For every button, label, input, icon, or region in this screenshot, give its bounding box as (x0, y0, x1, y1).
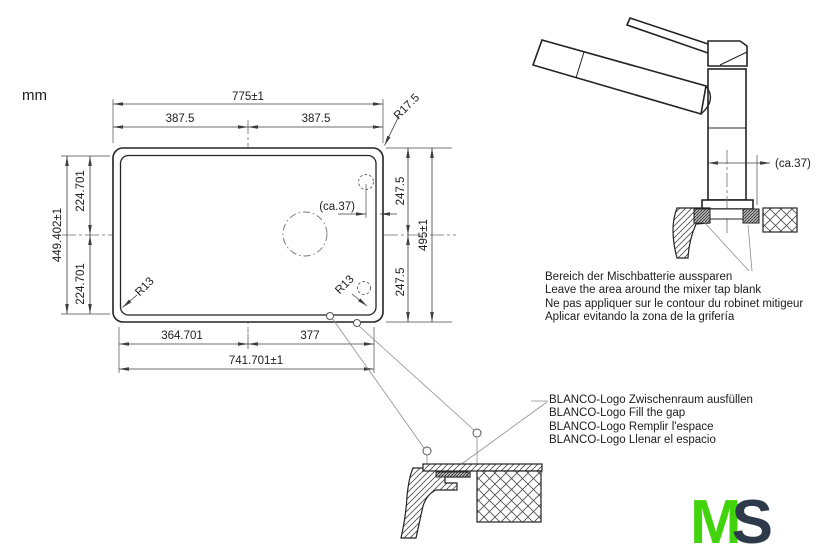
blanco-logo-note: BLANCO-Logo Zwischenraum ausfüllen BLANC… (549, 394, 753, 448)
mixer-note-leader-2 (748, 225, 752, 271)
mixer-note-leader-1 (704, 222, 749, 271)
blanco-logo-note-line-fr: BLANCO-Logo Remplir l'espace (549, 421, 753, 434)
rim-section-view (332, 318, 548, 538)
tap-lever (627, 18, 711, 53)
tap-head (708, 41, 747, 66)
blanco-logo-note-line-de: BLANCO-Logo Zwischenraum ausfüllen (549, 394, 753, 407)
ms-logo-letter-m: M (690, 488, 732, 557)
sink-rim-section (401, 468, 470, 538)
dim-bottom-right: 377 (300, 330, 319, 342)
section-marker-1 (423, 447, 431, 455)
mixer-tap-note: Bereich der Mischbatterie aussparen Leav… (545, 271, 803, 325)
ms-logo-letter-s: S (732, 488, 773, 557)
mixer-tap-note-line-en: Leave the area around the mixer tap blan… (545, 284, 803, 297)
unit-label: mm (22, 87, 47, 104)
dim-tap-offset: (ca.37) (319, 201, 355, 213)
sink-plan-view: 775±1 387.5 387.5 R17.5 247.5 495±1 247.… (52, 91, 456, 373)
logo-leader-2 (359, 326, 474, 430)
mixer-tap-note-line-es: Aplicar evitando la zona de la grifería (545, 311, 803, 324)
dim-bottom-left: 364.701 (161, 330, 203, 342)
logo-leader-1 (332, 318, 424, 448)
tap-mounting-nut (710, 209, 743, 219)
tap-clamp-left (694, 209, 710, 223)
dim-width-half-right: 387.5 (302, 113, 331, 125)
dim-width-half-left: 387.5 (166, 113, 195, 125)
blanco-logo-note-line-es: BLANCO-Logo Llenar el espacio (549, 434, 753, 447)
dim-width-total: 775±1 (232, 91, 264, 103)
blanco-logo-note-line-en: BLANCO-Logo Fill the gap (549, 407, 753, 420)
technical-drawing-sheet: 775±1 387.5 387.5 R17.5 247.5 495±1 247.… (0, 0, 840, 559)
logo-marker-outer (354, 320, 361, 327)
tap-detail-view: (ca.37) (533, 18, 811, 271)
tap-countertop-section (763, 208, 797, 232)
tap-clamp-right (743, 209, 759, 223)
countertop-section (477, 471, 541, 522)
dim-depth-half-bottom: 224.701 (75, 263, 87, 305)
dim-bottom-total: 741.701±1 (229, 355, 283, 367)
dim-depth-half-top: 224.701 (75, 170, 87, 212)
dim-height-half-top: 247.5 (395, 177, 407, 206)
corner-radius-leader (385, 116, 400, 146)
tap-spout (533, 40, 706, 114)
mixer-tap-note-line-de: Bereich der Mischbatterie aussparen (545, 271, 803, 284)
dim-tap-detail-offset: (ca.37) (775, 158, 811, 170)
dim-height-half-bottom: 247.5 (395, 268, 407, 297)
rim-top-plate (423, 464, 542, 471)
dim-corner-radius: R17.5 (392, 92, 422, 122)
dim-depth-total: 449.402±1 (52, 208, 64, 262)
rim-clamp-strip (436, 472, 468, 477)
section-marker-2 (473, 429, 481, 437)
dim-height-total: 495±1 (418, 219, 430, 251)
mixer-tap-note-line-fr: Ne pas appliquer sur le contour du robin… (545, 298, 803, 311)
ms-logo: MS (690, 492, 773, 554)
